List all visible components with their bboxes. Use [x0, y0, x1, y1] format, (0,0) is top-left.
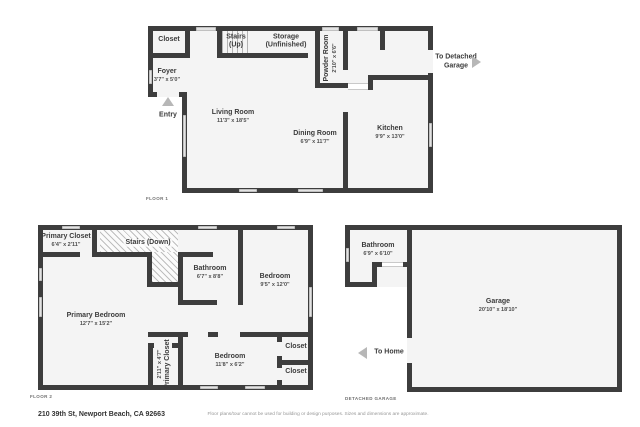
wall	[178, 332, 183, 390]
wall	[343, 26, 348, 70]
window	[196, 27, 216, 31]
wall	[407, 230, 412, 338]
room-label-closet-lower: Closet	[285, 368, 306, 376]
room-label-storage: Storage (Unfinished)	[255, 34, 317, 51]
wall	[277, 332, 282, 342]
room-name: Dining Room	[293, 130, 337, 138]
wall	[368, 75, 433, 80]
room-name: Garage	[479, 298, 517, 306]
room-dims: 9'5" x 12'0"	[260, 282, 291, 289]
room-label-bathroom: Bathroom 6'7" x 8'8"	[193, 265, 226, 281]
room-name: Stairs (Up)	[221, 34, 251, 51]
window	[346, 248, 350, 262]
window	[298, 189, 323, 193]
door-opening	[382, 262, 403, 267]
to-detached-garage-arrow-icon	[472, 56, 481, 68]
disclaimer-text: Floor plans/tour cannot be used for buil…	[207, 412, 428, 417]
room-name: Foyer	[154, 68, 180, 76]
room-dims: 2'10" x 6'6"	[332, 34, 339, 81]
door-opening	[348, 83, 368, 90]
window	[277, 226, 295, 230]
wall	[148, 92, 157, 97]
wall	[178, 252, 183, 305]
room-label-living-room: Living Room 11'3" x 18'5"	[212, 109, 254, 125]
window	[239, 189, 257, 193]
wall	[185, 26, 190, 58]
room-label-garage-bathroom: Bathroom 6'9" x 6'10"	[361, 242, 394, 258]
room-dims: 11'3" x 18'5"	[212, 118, 254, 125]
room-dims: 20'10" x 18'10"	[479, 307, 517, 314]
wall	[345, 225, 622, 230]
window	[62, 226, 80, 230]
wall	[148, 26, 153, 97]
wall	[617, 225, 622, 392]
window	[183, 115, 187, 157]
room-label-closet-upper: Closet	[285, 343, 306, 351]
detached-garage-section-label: DETACHED GARAGE	[345, 396, 397, 401]
room-name: Stairs (Down)	[123, 239, 172, 247]
wall	[282, 360, 313, 365]
room-name: Bedroom	[260, 273, 291, 281]
room-name: Powder Room	[323, 34, 331, 81]
wall	[38, 252, 80, 257]
wall	[178, 252, 213, 257]
property-address: 210 39th St, Newport Beach, CA 92663	[38, 411, 165, 418]
room-name: Storage (Unfinished)	[255, 34, 317, 51]
room-dims: 9'9" x 13'0"	[375, 134, 404, 141]
room-label-bedroom-lower: Bedroom 11'8" x 6'2"	[215, 353, 246, 369]
wall	[428, 26, 433, 50]
entry-arrow-icon	[162, 97, 174, 106]
room-label-primary-bedroom: Primary Bedroom 12'7" x 15'2"	[67, 312, 126, 328]
window	[200, 386, 218, 390]
floor2-section-label: FLOOR 2	[30, 394, 52, 399]
entry-label: Entry	[159, 112, 177, 121]
to-home-label: To Home	[374, 349, 403, 358]
room-label-dining-room: Dining Room 6'9" x 11'7"	[293, 130, 337, 146]
to-home-arrow-icon	[358, 347, 367, 359]
room-label-foyer: Foyer 3'7" x 5'0"	[154, 68, 180, 84]
window	[357, 27, 378, 31]
wall	[179, 92, 187, 97]
room-name: Bathroom	[361, 242, 394, 250]
room-name: Closet	[285, 343, 306, 351]
room-name: Primary Bedroom	[67, 312, 126, 320]
wall	[217, 53, 252, 58]
wall	[403, 262, 407, 267]
room-dims: 11'8" x 6'2"	[215, 362, 246, 369]
room-dims: 6'9" x 11'7"	[293, 139, 337, 146]
room-name: Bedroom	[215, 353, 246, 361]
wall	[92, 225, 97, 257]
window	[309, 287, 313, 317]
window	[322, 27, 339, 31]
window	[429, 123, 433, 147]
room-label-garage: Garage 20'10" x 18'10"	[479, 298, 517, 314]
stairs-hatch	[152, 252, 178, 282]
room-dims: 6'9" x 6'10"	[361, 251, 394, 258]
room-label-closet: Closet	[158, 36, 179, 44]
room-label-powder-room: Powder Room 2'10" x 6'6"	[323, 34, 339, 81]
wall	[172, 343, 178, 348]
room-label-stairs-down: Stairs (Down)	[123, 239, 172, 247]
room-label-kitchen: Kitchen 9'9" x 13'0"	[375, 125, 404, 141]
wall	[277, 380, 282, 390]
room-name: Living Room	[212, 109, 254, 117]
room-name: Primary Closet	[164, 339, 172, 388]
room-name: Closet	[158, 36, 179, 44]
room-dims: 3'7" x 5'0"	[154, 77, 180, 84]
wall	[208, 332, 218, 337]
wall	[238, 226, 243, 305]
room-label-primary-closet-lower: 2'11" x 4'7" Primary Closet	[156, 339, 172, 388]
room-name: Closet	[285, 368, 306, 376]
room-dims: 6'7" x 8'8"	[193, 274, 226, 281]
room-name: Primary Closet	[41, 233, 90, 241]
floor-plan-page: Closet Stairs (Up) Storage (Unfinished) …	[0, 0, 640, 427]
room-label-bedroom-upper: Bedroom 9'5" x 12'0"	[260, 273, 291, 289]
wall	[38, 385, 313, 390]
floor1-section-label: FLOOR 1	[146, 196, 168, 201]
window	[198, 226, 217, 230]
room-name: Bathroom	[193, 265, 226, 273]
wall	[248, 53, 308, 58]
wall	[148, 26, 433, 31]
room-label-primary-closet-top: Primary Closet 6'4" x 2'11"	[41, 233, 90, 249]
window	[149, 70, 153, 84]
wall	[380, 26, 385, 50]
wall	[92, 252, 152, 257]
wall	[343, 112, 348, 193]
room-name: Kitchen	[375, 125, 404, 133]
room-label-stairs-up: Stairs (Up)	[221, 34, 251, 51]
wall	[238, 300, 243, 305]
wall	[148, 343, 153, 390]
wall	[178, 300, 217, 305]
wall	[315, 83, 348, 88]
window	[245, 386, 265, 390]
window	[39, 297, 43, 317]
room-dims: 6'4" x 2'11"	[41, 242, 90, 249]
room-dims: 12'7" x 15'2"	[67, 321, 126, 328]
window	[39, 268, 43, 281]
wall	[148, 53, 190, 58]
wall	[407, 363, 412, 387]
wall	[407, 387, 622, 392]
wall	[368, 75, 373, 90]
